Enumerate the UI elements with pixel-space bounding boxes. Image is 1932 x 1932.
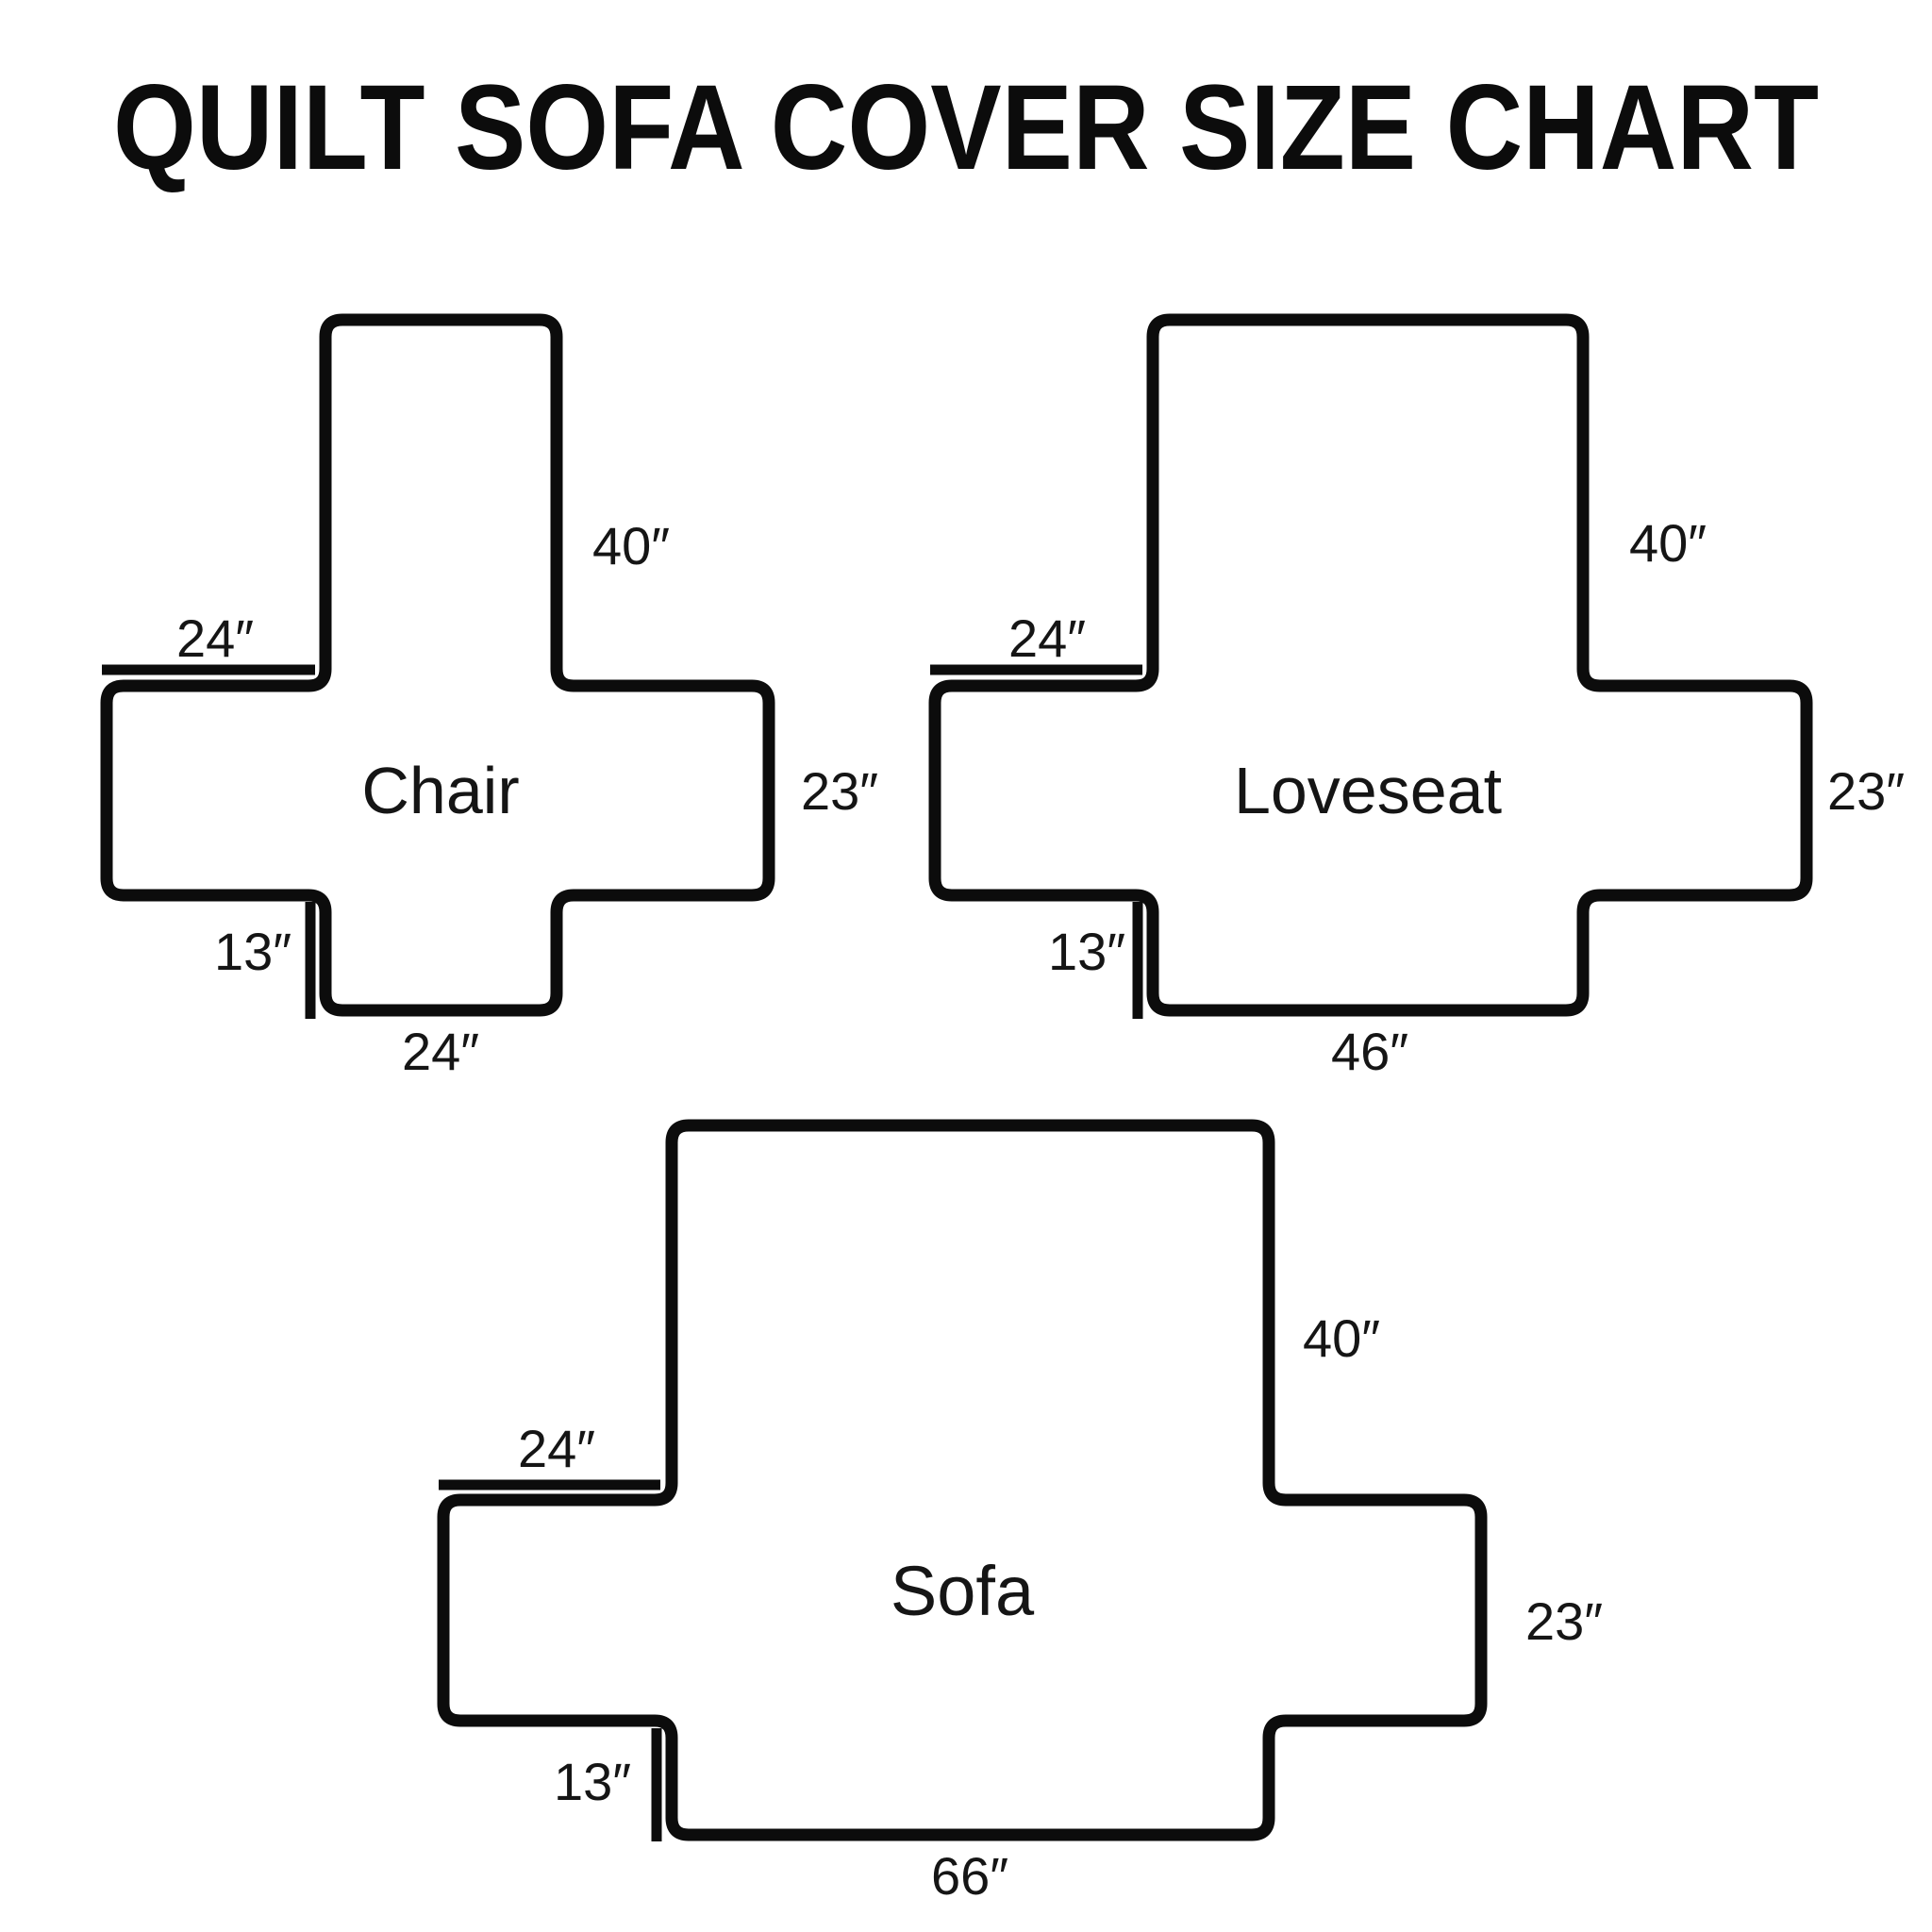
chair-arm-side-height-label: 23″	[801, 761, 878, 821]
loveseat-bottom-width-label: 46″	[1331, 1022, 1408, 1081]
chair-bottom-width-label: 24″	[402, 1022, 479, 1081]
chair-diagram: 40″ 24″ 23″ 13″ 24″ Chair	[102, 320, 878, 1081]
loveseat-arm-top-width-label: 24″	[1008, 608, 1086, 668]
sofa-bottom-width-label: 66″	[931, 1846, 1008, 1906]
chair-back-height-label: 40″	[592, 516, 670, 575]
loveseat-back-height-label: 40″	[1629, 513, 1707, 573]
loveseat-diagram: 40″ 24″ 23″ 13″ 46″ Loveseat	[930, 320, 1905, 1081]
sofa-name-label: Sofa	[891, 1552, 1035, 1630]
chair-front-drop-label: 13″	[214, 922, 291, 981]
chair-name-label: Chair	[361, 754, 519, 827]
chair-arm-top-width-label: 24″	[176, 608, 254, 668]
page-title: QUILT SOFA COVER SIZE CHART	[113, 60, 1819, 195]
sofa-diagram: 40″ 24″ 23″ 13″ 66″ Sofa	[439, 1125, 1603, 1906]
loveseat-arm-side-height-label: 23″	[1827, 761, 1905, 821]
sofa-arm-top-width-label: 24″	[518, 1419, 595, 1478]
sofa-back-height-label: 40″	[1303, 1308, 1380, 1368]
sofa-front-drop-label: 13″	[554, 1752, 631, 1811]
size-chart-canvas: QUILT SOFA COVER SIZE CHART 40″ 24″ 23″ …	[0, 0, 1932, 1932]
loveseat-front-drop-label: 13″	[1048, 922, 1125, 981]
loveseat-name-label: Loveseat	[1234, 754, 1502, 827]
size-chart-page: QUILT SOFA COVER SIZE CHART 40″ 24″ 23″ …	[0, 0, 1932, 1932]
sofa-arm-side-height-label: 23″	[1525, 1591, 1603, 1651]
